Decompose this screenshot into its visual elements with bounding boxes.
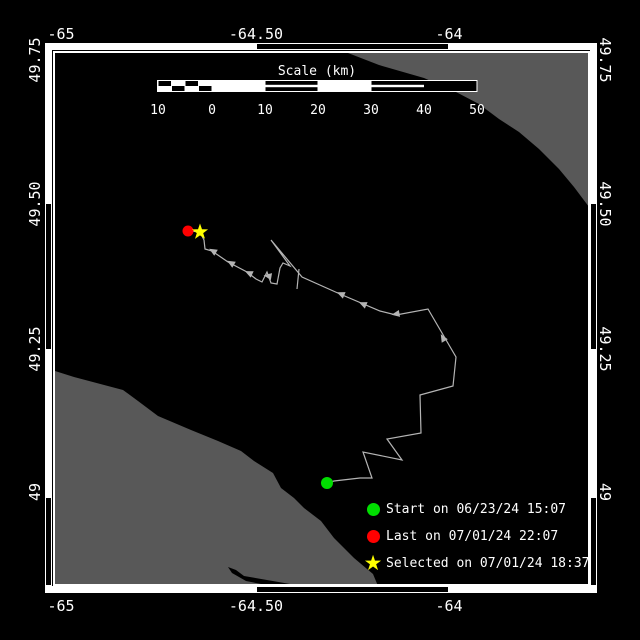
scalebar-tick-label: 50	[469, 103, 485, 118]
tracking-map: Scale (km)1001020304050 -65-65-64.50-64.…	[0, 0, 640, 640]
frame-band-segment	[45, 203, 52, 350]
frame-band-segment	[449, 586, 597, 593]
scalebar-segment-stripe	[265, 85, 318, 87]
track-direction-arrow-icon	[357, 299, 367, 309]
frame-band-segment	[256, 43, 449, 50]
longitude-label-top: -64.50	[229, 25, 283, 43]
frame-band-segment	[45, 43, 256, 50]
legend-label: Selected on 07/01/24 18:37	[386, 556, 590, 571]
frame-band-segment	[45, 497, 52, 586]
selected-marker[interactable]	[192, 224, 208, 239]
latitude-label-right: 49.25	[596, 326, 614, 371]
scalebar-segment	[318, 81, 371, 91]
frame-band-segment	[590, 497, 597, 586]
position-dot-icon	[360, 530, 386, 543]
scalebar-checker	[185, 86, 199, 91]
scalebar-tick-label: 20	[310, 103, 326, 118]
legend-label: Last on 07/01/24 22:07	[386, 529, 558, 544]
scalebar-tick-label: 10	[257, 103, 273, 118]
scalebar-title: Scale (km)	[278, 64, 356, 79]
frame-band-segment	[449, 43, 597, 50]
legend-item: ★Selected on 07/01/24 18:37	[360, 550, 590, 577]
scalebar-checker	[158, 86, 172, 91]
frame-band-segment	[590, 350, 597, 497]
latitude-label-right: 49.50	[596, 181, 614, 226]
longitude-label-bottom: -64	[435, 597, 462, 615]
latitude-label-right: 49	[596, 483, 614, 501]
frame-band-segment	[45, 350, 52, 497]
last-marker[interactable]	[183, 226, 194, 237]
frame-band-segment	[45, 43, 52, 203]
scalebar-segment-stripe	[371, 85, 424, 87]
scalebar-tick-label: 30	[363, 103, 379, 118]
legend: Start on 06/23/24 15:07Last on 07/01/24 …	[360, 496, 590, 577]
latitude-label-left: 49	[26, 483, 44, 501]
scalebar-segment	[212, 81, 265, 91]
scalebar-checker	[199, 81, 213, 86]
latitude-label-left: 49.50	[26, 181, 44, 226]
longitude-label-bottom: -64.50	[229, 597, 283, 615]
land-polygon	[348, 53, 588, 207]
dot-icon	[367, 503, 380, 516]
start-marker[interactable]	[321, 477, 333, 489]
position-dot-icon	[360, 503, 386, 516]
scalebar-tick-label: 40	[416, 103, 432, 118]
latitude-label-left: 49.25	[26, 326, 44, 371]
star-icon: ★	[364, 557, 383, 570]
scalebar-tick-label: 0	[208, 103, 216, 118]
selected-star-icon: ★	[360, 557, 386, 570]
scalebar-checker	[172, 81, 186, 86]
land-polygon	[55, 371, 378, 584]
frame-band-segment	[45, 586, 256, 593]
track-direction-arrow-icon	[225, 258, 235, 268]
scalebar-tick-label: 10	[150, 103, 166, 118]
legend-item: Last on 07/01/24 22:07	[360, 523, 590, 550]
dot-icon	[367, 530, 380, 543]
track-direction-arrow-icon	[335, 289, 345, 299]
legend-label: Start on 06/23/24 15:07	[386, 502, 566, 517]
longitude-label-bottom: -65	[47, 597, 74, 615]
longitude-label-top: -64	[435, 25, 462, 43]
track-line[interactable]	[191, 231, 456, 483]
longitude-label-top: -65	[47, 25, 74, 43]
legend-item: Start on 06/23/24 15:07	[360, 496, 590, 523]
frame-band-segment	[256, 586, 449, 593]
latitude-label-left: 49.75	[26, 37, 44, 82]
latitude-label-right: 49.75	[596, 37, 614, 82]
